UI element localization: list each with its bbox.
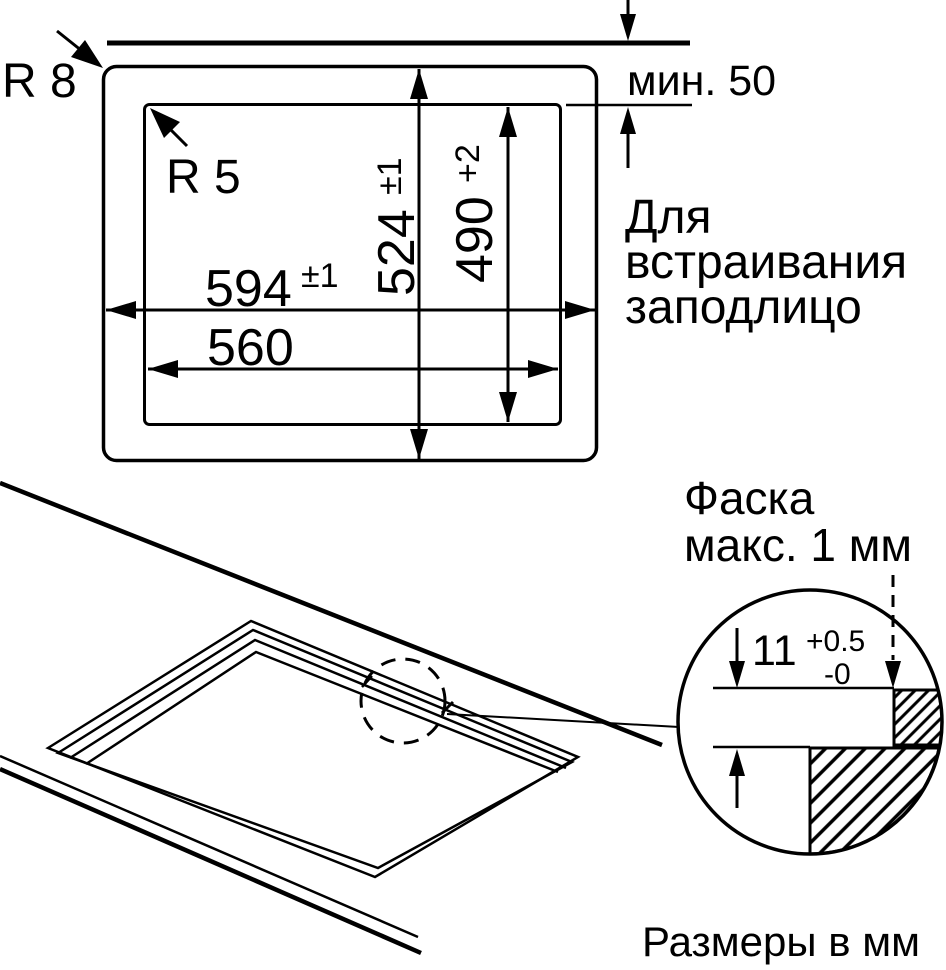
r8-label: R 8	[2, 55, 77, 108]
plan-view: R 8 R 5 мин. 50 594 ±1	[2, 0, 907, 461]
chamfer-label-line2: макс. 1 мм	[684, 519, 912, 571]
isometric-view	[0, 483, 679, 953]
dim-490-tolerance: +2	[449, 144, 487, 183]
installation-diagram-page: R 8 R 5 мин. 50 594 ±1	[0, 0, 946, 970]
iso-worktop-front-edge-inner	[0, 756, 418, 937]
units-note: Размеры в мм	[642, 918, 920, 965]
detail-depth-tol-minus: -0	[824, 658, 851, 691]
installation-diagram: R 8 R 5 мин. 50 594 ±1	[0, 0, 946, 970]
dim-594-tolerance: ±1	[301, 257, 339, 295]
iso-cutout-step-line-2	[70, 640, 566, 768]
dim-594-value: 594	[205, 260, 292, 318]
dim-min50-value: мин. 50	[627, 57, 776, 105]
dim-560-value: 560	[207, 319, 294, 377]
iso-cutout-step-line-3	[86, 652, 558, 772]
chamfer-label-line1: Фаска	[684, 472, 815, 524]
r8-leader-line	[57, 31, 82, 51]
flush-note-line-3: заподлицо	[625, 281, 862, 334]
dim-490-value: 490	[446, 196, 504, 283]
iso-worktop-back-edge	[0, 483, 662, 745]
detail-depth-tol-plus: +0.5	[806, 625, 865, 658]
flush-mount-note: Для встраивания заподлицо	[625, 191, 907, 334]
dim-524-value: 524	[368, 209, 426, 296]
r8-callout: R 8	[2, 31, 103, 108]
detail-view: 11 +0.5 -0 Фаска макс. 1 мм	[678, 472, 942, 854]
dim-min50-arrow-up	[620, 107, 636, 134]
r5-label: R 5	[166, 151, 241, 204]
detail-depth-value: 11	[752, 627, 797, 675]
dim-min50-arrow-down	[620, 14, 636, 41]
dim-524-tolerance: ±1	[371, 157, 409, 195]
detail-hatch-upper	[894, 690, 942, 745]
